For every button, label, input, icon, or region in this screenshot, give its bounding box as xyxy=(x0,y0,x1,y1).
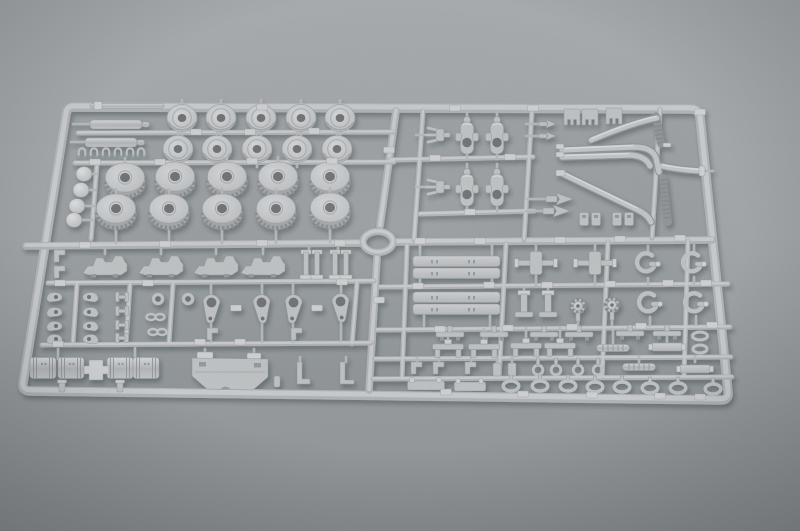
sprue-photo xyxy=(0,0,800,531)
photo-stage: Photograph of a light gray injection-mol… xyxy=(0,0,800,531)
film-grain-overlay xyxy=(0,0,800,531)
